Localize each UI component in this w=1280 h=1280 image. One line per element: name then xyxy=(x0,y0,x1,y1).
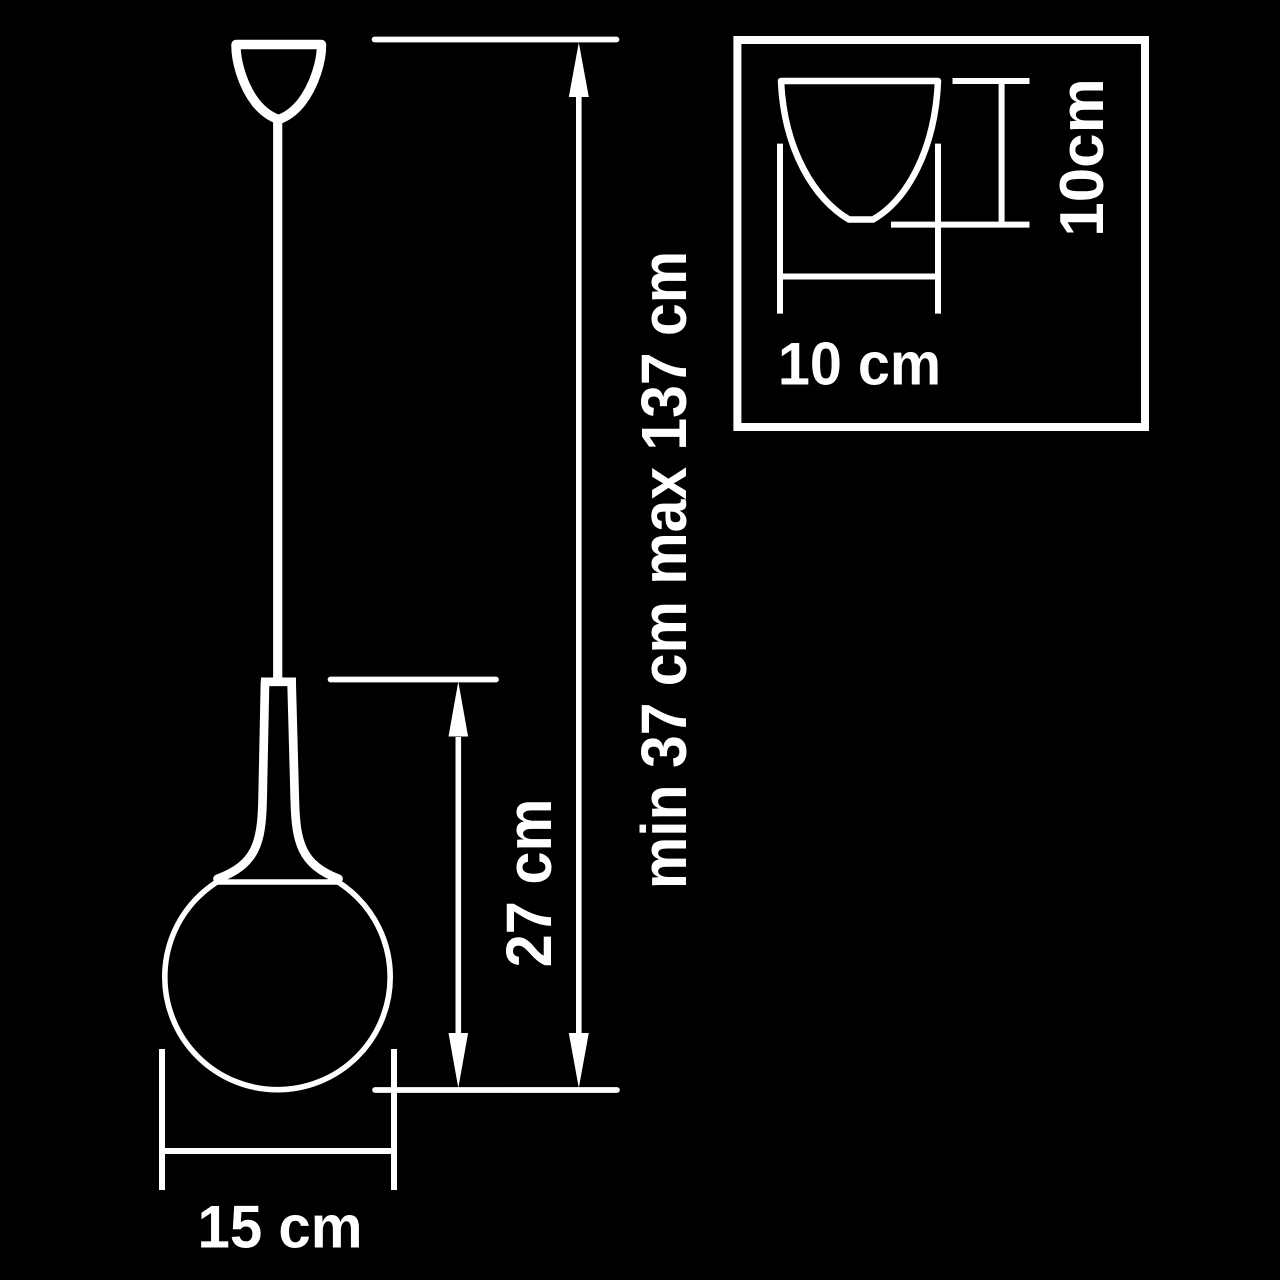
svg-text:10 cm: 10 cm xyxy=(778,331,941,397)
svg-text:27 cm: 27 cm xyxy=(494,799,565,968)
svg-text:15 cm: 15 cm xyxy=(198,1193,363,1261)
svg-text:10cm: 10cm xyxy=(1048,78,1117,237)
svg-text:min 37 cm max 137 cm: min 37 cm max 137 cm xyxy=(629,251,701,889)
